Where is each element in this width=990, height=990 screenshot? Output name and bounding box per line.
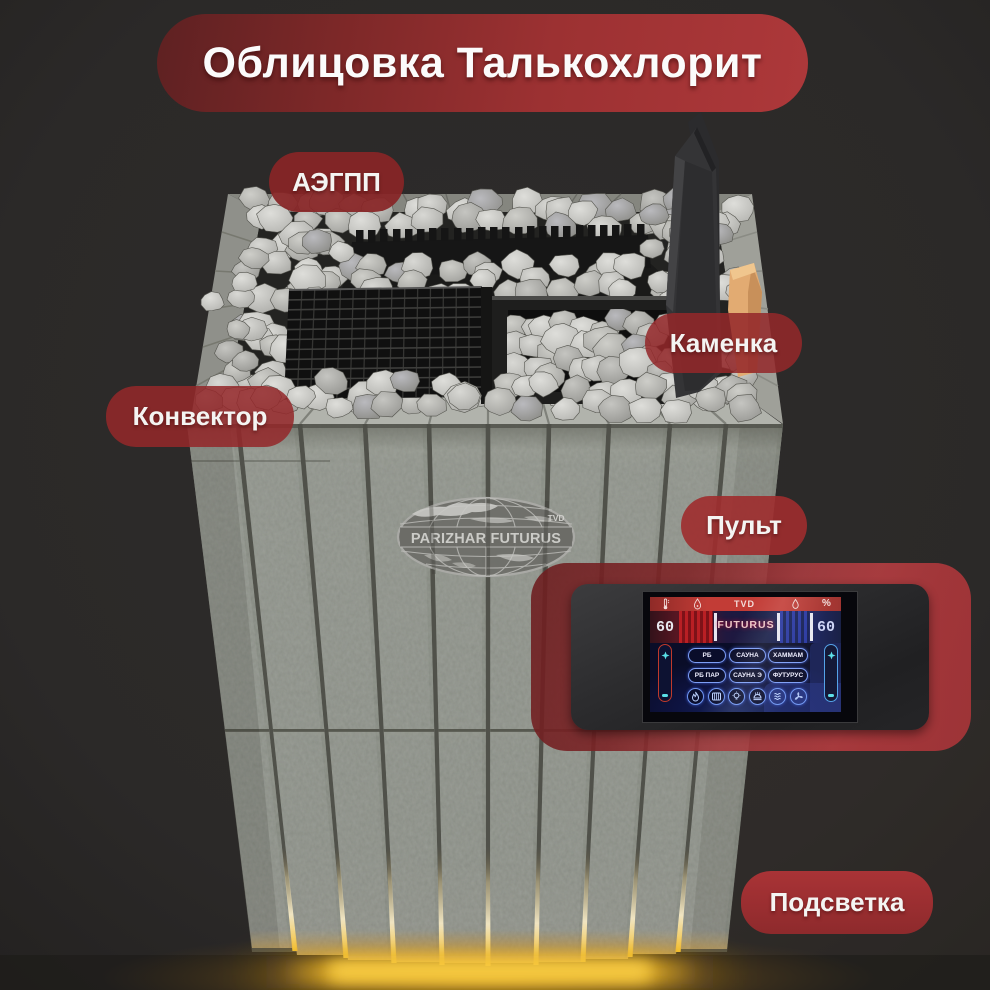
svg-text:TVD: TVD (548, 513, 565, 523)
